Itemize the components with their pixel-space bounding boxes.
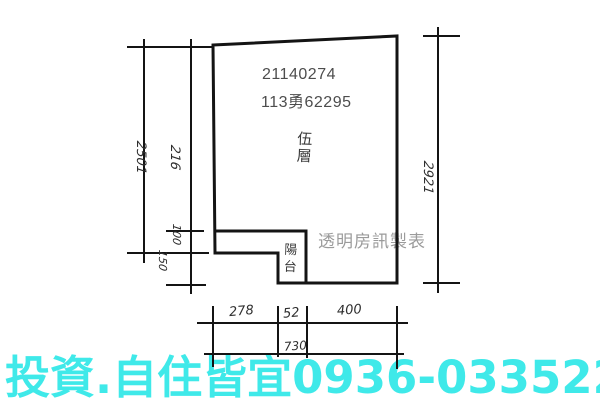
dim-bottom-segment-1: 278 xyxy=(228,303,254,320)
dim-left-total: 2501 xyxy=(133,140,148,175)
dim-bottom-total: 730 xyxy=(284,338,308,354)
dim-right-height: 2921 xyxy=(420,160,435,195)
dim-left-lower: 150 xyxy=(156,249,169,272)
dim-left-mid: 100 xyxy=(170,223,183,246)
floor-plan-page: 投資.自住皆宜0936-033522 xyxy=(0,0,600,401)
dim-left-upper: 216 xyxy=(167,144,182,171)
dim-bottom-segment-2: 52 xyxy=(282,305,300,321)
balcony-partition-line xyxy=(215,231,306,283)
dim-bottom-segment-3: 400 xyxy=(337,302,363,319)
